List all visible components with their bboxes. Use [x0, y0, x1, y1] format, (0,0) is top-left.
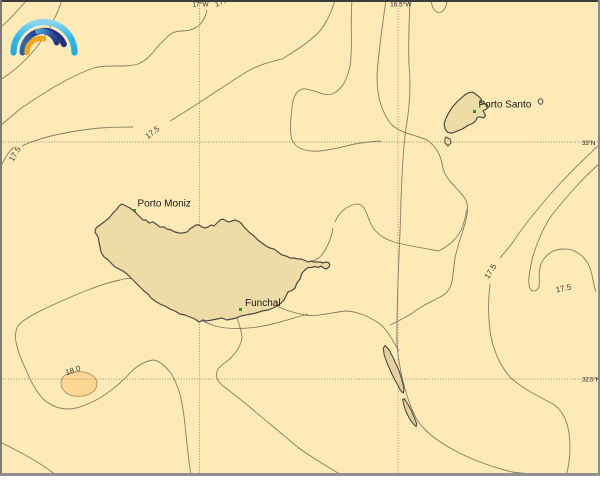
svg-text:Porto Santo: Porto Santo: [479, 100, 532, 111]
svg-text:33°N: 33°N: [582, 139, 596, 147]
svg-text:Porto Moniz: Porto Moniz: [138, 199, 191, 210]
svg-text:32.5°N: 32.5°N: [582, 375, 600, 383]
svg-text:Funchal: Funchal: [245, 298, 281, 309]
